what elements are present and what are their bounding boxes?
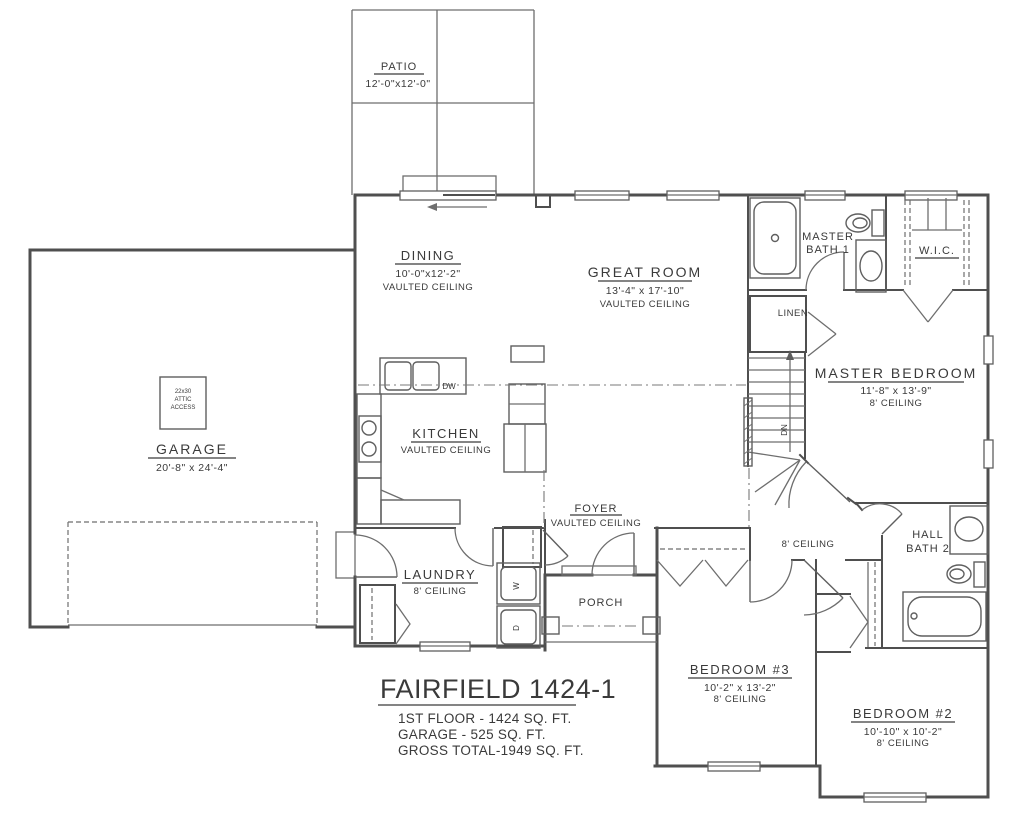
master-bedroom-window: [984, 336, 993, 364]
dining-ceiling: VAULTED CEILING: [383, 282, 474, 293]
garage-entry-step: [336, 532, 355, 578]
patio-label: PATIO: [381, 61, 417, 73]
master-bedroom-dims: 11'-8" x 13'-9": [860, 385, 931, 397]
laundry-closet: [360, 585, 395, 643]
patio-dims: 12'-0"x12'-0": [365, 78, 430, 90]
slider-arrow-head: [427, 203, 437, 211]
bifold-door: [705, 560, 748, 586]
hall-bath-door: [882, 514, 902, 534]
garage-label: GARAGE: [156, 441, 228, 457]
hall-ceiling: 8' CEILING: [782, 539, 835, 550]
bedroom3-label: BEDROOM #3: [690, 662, 790, 677]
attic-access-panel: [160, 377, 206, 429]
toilet-tank: [872, 210, 884, 236]
patio-outline: [352, 10, 534, 195]
wic-door: [903, 290, 928, 322]
bifold-door: [850, 596, 868, 648]
dishwasher-label: DW: [442, 382, 456, 391]
kitchen-counter: [381, 500, 460, 524]
upper-cabinet: [511, 346, 544, 362]
attic-access-line3: ACCESS: [171, 405, 196, 411]
title-block: FAIRFIELD 1424-1 1ST FLOOR - 1424 SQ. FT…: [378, 674, 616, 758]
linen-label: LINEN: [778, 308, 808, 319]
washer-label: W: [512, 582, 521, 590]
great-room-ceiling: VAULTED CEILING: [600, 299, 691, 310]
foyer-closet: [503, 527, 541, 567]
foyer-ceiling: VAULTED CEILING: [551, 518, 642, 529]
floor-plan-drawing: PATIO 12'-0"x12'-0" DINING 10'-0"x12'-2"…: [0, 0, 1024, 819]
shower-drain: [772, 235, 779, 242]
dining-dims: 10'-0"x12'-2": [395, 268, 460, 280]
staircase: [744, 350, 805, 505]
kitchen-counter: [357, 394, 381, 478]
vent-notch: [536, 195, 550, 207]
master-bedroom-door: [808, 463, 850, 502]
laundry-fixtures: [497, 563, 540, 648]
attic-access-line2: ATTIC: [175, 397, 193, 403]
attic-access-line1: 22x30: [175, 389, 192, 395]
kitchen-sink: [385, 362, 411, 390]
closet-door: [543, 530, 568, 556]
linen-closet: [750, 296, 806, 352]
shower: [750, 198, 800, 278]
tub-faucet: [911, 613, 917, 619]
toilet-tank: [974, 562, 985, 587]
great-room-dims: 13'-4" x 17'-10": [606, 285, 684, 297]
hall-bath-label-2: BATH 2: [906, 543, 950, 555]
range: [359, 416, 381, 462]
master-bath-label-1: MASTER: [802, 231, 854, 243]
bedroom2-label: BEDROOM #2: [853, 706, 953, 721]
master-bedroom-window: [984, 440, 993, 468]
bedroom2-door: [804, 560, 843, 598]
plan-area-line2: GARAGE - 525 SQ. FT.: [398, 727, 546, 742]
plan-area-line1: 1ST FLOOR - 1424 SQ. FT.: [398, 711, 572, 726]
plan-area-line3: GROSS TOTAL-1949 SQ. FT.: [398, 743, 584, 758]
wic-label: W.I.C.: [919, 245, 955, 257]
porch-label: PORCH: [579, 597, 624, 609]
master-bedroom-label: MASTER BEDROOM: [815, 365, 978, 381]
garage-dims: 20'-8" x 24'-4": [156, 462, 228, 474]
foyer-label: FOYER: [575, 503, 618, 515]
hall-bath-label-1: HALL: [912, 529, 944, 541]
vanity-sink: [955, 517, 983, 541]
burner: [362, 442, 376, 456]
master-bedroom-ceiling: 8' CEILING: [870, 398, 923, 409]
kitchen-sink: [413, 362, 439, 390]
bifold-door: [657, 560, 703, 586]
kitchen-label: KITCHEN: [412, 426, 480, 441]
garage-walls: [30, 250, 355, 627]
burner: [362, 421, 376, 435]
dining-label: DINING: [401, 248, 456, 263]
bedroom2-ceiling: 8' CEILING: [877, 738, 930, 749]
stairs-down-label: DN: [780, 424, 789, 436]
hall-bath-fixtures: [903, 506, 988, 641]
dryer-label: D: [512, 625, 521, 631]
labels: PATIO 12'-0"x12'-0" DINING 10'-0"x12'-2"…: [148, 61, 977, 749]
vanity-sink: [860, 251, 882, 281]
porch: [542, 617, 660, 642]
master-bath-label-2: BATH 1: [806, 244, 850, 256]
ceiling-break-lines: [358, 385, 749, 528]
bedroom3-dims: 10'-2" x 13'-2": [704, 682, 776, 694]
plan-title: FAIRFIELD 1424-1: [380, 674, 616, 704]
laundry-ceiling: 8' CEILING: [414, 586, 467, 597]
kitchen-counter: [357, 478, 381, 524]
floor-plan-page: PATIO 12'-0"x12'-0" DINING 10'-0"x12'-2"…: [0, 0, 1024, 819]
bedroom2-dims: 10'-10" x 10'-2": [864, 726, 942, 738]
kitchen-ceiling: VAULTED CEILING: [401, 445, 492, 456]
laundry-label: LAUNDRY: [404, 567, 476, 582]
bifold-door: [396, 604, 410, 644]
bedroom3-ceiling: 8' CEILING: [714, 694, 767, 705]
linen-door: [808, 312, 836, 334]
great-room-label: GREAT ROOM: [588, 264, 702, 280]
